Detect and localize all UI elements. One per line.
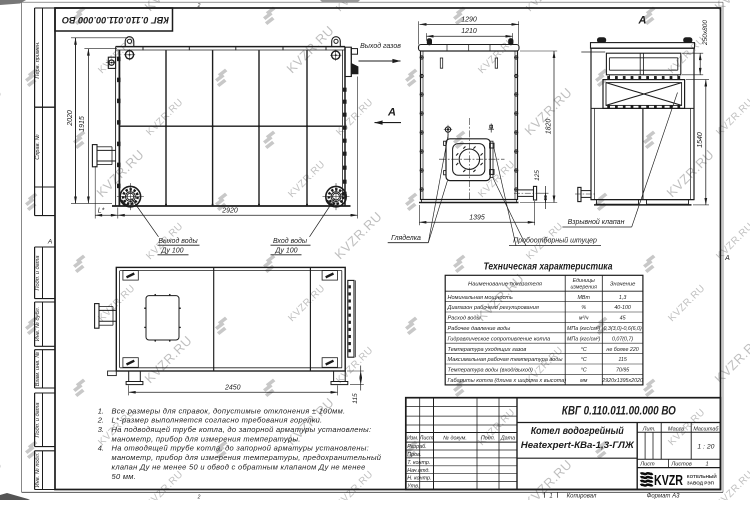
svg-text:L*: L* xyxy=(98,207,105,214)
svg-text:1,3: 1,3 xyxy=(619,295,626,301)
svg-text:1540: 1540 xyxy=(697,132,704,148)
svg-text:1395: 1395 xyxy=(469,215,485,222)
svg-text:Вход воды: Вход воды xyxy=(273,237,308,245)
svg-text:Пробоотборный штуцер: Пробоотборный штуцер xyxy=(513,237,597,245)
svg-text:1915: 1915 xyxy=(79,116,86,132)
svg-text:1820: 1820 xyxy=(545,119,552,135)
svg-text:2020: 2020 xyxy=(67,110,74,127)
svg-text:Heatexpert-КВа-1,3-ГЛЖ: Heatexpert-КВа-1,3-ГЛЖ xyxy=(521,440,635,451)
svg-text:4.: 4. xyxy=(98,444,104,453)
svg-text:МВт: МВт xyxy=(578,295,591,301)
svg-text:Наименование показателя: Наименование показателя xyxy=(468,282,542,288)
svg-text:Единицы: Единицы xyxy=(573,278,595,284)
svg-text:МПа (кгс/см²): МПа (кгс/см²) xyxy=(567,336,601,342)
svg-text:№ докум.: № докум. xyxy=(443,436,467,442)
svg-text:1 : 20: 1 : 20 xyxy=(697,443,714,450)
svg-text:Изм.: Изм. xyxy=(407,436,419,442)
svg-text:2920: 2920 xyxy=(221,207,238,214)
svg-text:А: А xyxy=(724,255,730,262)
svg-text:Разраб.: Разраб. xyxy=(407,444,427,450)
svg-text:1.: 1. xyxy=(98,406,104,415)
svg-text:°С: °С xyxy=(581,368,587,374)
svg-text:2.: 2. xyxy=(97,416,104,425)
svg-text:не более 220: не более 220 xyxy=(606,347,638,353)
svg-text:Температура воды (вход/выход): Температура воды (вход/выход) xyxy=(448,368,534,374)
svg-text:КОТЕЛЬНЫЙ: КОТЕЛЬНЫЙ xyxy=(687,472,717,479)
svg-text:Перв. примен.: Перв. примен. xyxy=(35,41,41,78)
svg-text:Взрывной клапан: Взрывной клапан xyxy=(568,218,625,226)
svg-text:Значение: Значение xyxy=(610,282,636,288)
svg-text:Формат А3: Формат А3 xyxy=(647,494,680,500)
svg-text:манометр, прибор для измерения: манометр, прибор для измерения температу… xyxy=(112,453,382,462)
svg-text:Гляделка: Гляделка xyxy=(391,234,421,242)
svg-text:Габариты котла (длина х ширина: Габариты котла (длина х ширина х высота) xyxy=(448,378,567,384)
svg-text:Температура уходящих газов: Температура уходящих газов xyxy=(448,347,527,353)
svg-text:Взам. инв. №: Взам. инв. № xyxy=(35,352,41,387)
svg-text:Рабочее давление воды: Рабочее давление воды xyxy=(448,326,511,332)
svg-text:Лист: Лист xyxy=(419,436,434,442)
svg-text:Масштаб: Масштаб xyxy=(693,426,719,432)
svg-text:°С: °С xyxy=(581,347,587,353)
svg-text:ЗАВОД РЭП: ЗАВОД РЭП xyxy=(687,480,714,485)
svg-text:Гидравлическое сопротивление к: Гидравлическое сопротивление котла xyxy=(448,336,551,342)
svg-text:Номинальная мощность: Номинальная мощность xyxy=(448,295,513,301)
svg-text:1210: 1210 xyxy=(461,28,477,35)
svg-text:На подводящей трубе котла, до: На подводящей трубе котла, до запорной а… xyxy=(112,425,372,434)
svg-text:Лист: Лист xyxy=(639,462,655,468)
svg-text:L*-размер выполняется согласно: L*-размер выполняется согласно требовани… xyxy=(112,416,323,425)
svg-text:Нач.отд.: Нач.отд. xyxy=(407,468,430,474)
svg-text:Ду 100: Ду 100 xyxy=(274,248,297,255)
svg-text:%: % xyxy=(581,305,586,311)
svg-text:2: 2 xyxy=(197,495,201,500)
svg-text:Расход воды: Расход воды xyxy=(448,316,481,322)
svg-text:Выход воды: Выход воды xyxy=(158,237,198,245)
svg-text:мм: мм xyxy=(580,378,588,384)
svg-text:Подп. и дата: Подп. и дата xyxy=(35,402,41,437)
svg-text:Н. контр.: Н. контр. xyxy=(407,476,431,482)
svg-text:115: 115 xyxy=(618,357,626,363)
svg-text:0,3(3,0)-0,6(6,0): 0,3(3,0)-0,6(6,0) xyxy=(603,326,642,332)
svg-text:Пров.: Пров. xyxy=(407,452,421,458)
svg-text:м³/ч: м³/ч xyxy=(579,316,589,322)
svg-text:45: 45 xyxy=(620,316,626,322)
svg-text:Максимальная рабочая температу: Максимальная рабочая температура воды xyxy=(448,357,563,363)
svg-text:Дата: Дата xyxy=(500,436,515,442)
svg-text:Подп. и дата: Подп. и дата xyxy=(35,255,41,290)
svg-text:KVZR: KVZR xyxy=(654,473,683,489)
svg-text:Подп.: Подп. xyxy=(481,436,495,442)
svg-text:1290: 1290 xyxy=(461,16,477,23)
svg-text:А: А xyxy=(47,239,52,246)
svg-text:Ду 100: Ду 100 xyxy=(160,248,183,255)
svg-text:Т. контр.: Т. контр. xyxy=(407,460,430,466)
svg-text:Листов: Листов xyxy=(670,462,691,468)
svg-text:КВГ 0.110.011.00.000 ВО: КВГ 0.110.011.00.000 ВО xyxy=(562,403,676,417)
svg-text:Инв. № дубл.: Инв. № дубл. xyxy=(35,307,41,341)
svg-text:КВГ 0.110.011.00.000 ВО: КВГ 0.110.011.00.000 ВО xyxy=(62,15,169,25)
svg-text:Диапазон рабочего регулировани: Диапазон рабочего регулирования xyxy=(447,305,539,311)
svg-text:Масса: Масса xyxy=(668,426,685,432)
svg-text:Все размеры для справок, допус: Все размеры для справок, допустимые откл… xyxy=(112,406,346,415)
svg-text:°С: °С xyxy=(581,357,587,363)
svg-text:0,07(0,7): 0,07(0,7) xyxy=(612,336,633,342)
svg-text:Лит.: Лит. xyxy=(642,426,656,432)
svg-text:А: А xyxy=(387,107,396,119)
svg-text:1: 1 xyxy=(549,494,552,500)
svg-text:Справ. №: Справ. № xyxy=(35,134,41,159)
svg-text:Копировал: Копировал xyxy=(567,494,597,500)
svg-text:50 мм.: 50 мм. xyxy=(112,472,137,481)
svg-text:125: 125 xyxy=(534,170,541,181)
svg-text:250х800: 250х800 xyxy=(702,20,709,46)
svg-text:Выход газов: Выход газов xyxy=(360,42,401,50)
svg-text:МПа (кгс/см²): МПа (кгс/см²) xyxy=(567,326,601,332)
svg-text:Утв.: Утв. xyxy=(406,484,419,490)
svg-text:2920х1395х2020: 2920х1395х2020 xyxy=(601,378,643,384)
svg-text:1: 1 xyxy=(705,462,708,468)
svg-text:измерения: измерения xyxy=(570,285,597,291)
svg-text:Инв. № подл.: Инв. № подл. xyxy=(35,453,41,488)
svg-text:70/95: 70/95 xyxy=(616,368,629,374)
svg-text:Котел водогрейный: Котел водогрейный xyxy=(531,426,625,437)
svg-text:40-100: 40-100 xyxy=(614,305,631,311)
svg-text:клапан Ду не менее 50 и обвод: клапан Ду не менее 50 и обвод с обратным… xyxy=(112,462,366,471)
svg-text:манометр, прибор для измерения: манометр, прибор для измерения температу… xyxy=(112,434,301,443)
svg-text:2450: 2450 xyxy=(224,384,241,391)
svg-text:Техническая характеристика: Техническая характеристика xyxy=(484,261,613,272)
svg-text:А: А xyxy=(638,15,647,27)
svg-text:На отводящей трубе котла, до з: На отводящей трубе котла, до запорной ар… xyxy=(112,444,370,453)
svg-text:3.: 3. xyxy=(98,425,104,434)
svg-text:115: 115 xyxy=(352,393,359,404)
